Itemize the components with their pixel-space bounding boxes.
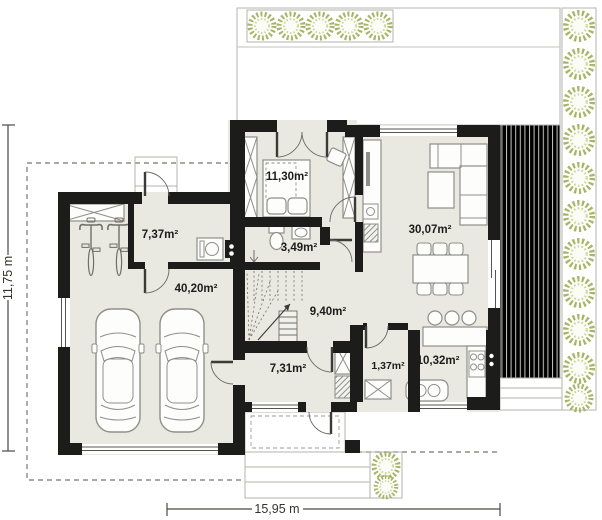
window-kitchen bbox=[420, 402, 467, 412]
shrub-icon bbox=[279, 14, 303, 38]
closet-icon bbox=[365, 380, 391, 399]
sliding-door-living bbox=[488, 240, 500, 308]
room-label-pantry: 1,37m² bbox=[371, 360, 405, 372]
kitchen-counter-icon bbox=[467, 346, 486, 398]
dimension-width-label: 15,95 m bbox=[254, 502, 299, 516]
shrub-icon bbox=[366, 14, 390, 38]
shrub-icon bbox=[566, 51, 592, 77]
door-main-entrance bbox=[309, 412, 331, 434]
shrub-icon bbox=[337, 14, 361, 38]
entrance-porch bbox=[245, 412, 370, 498]
coffee-table-icon bbox=[428, 172, 454, 208]
shrub-icon bbox=[566, 317, 592, 343]
room-label-entrance: 7,31m² bbox=[270, 363, 307, 375]
bar-counter-icon bbox=[423, 327, 487, 346]
room-label-hall: 9,40m² bbox=[310, 306, 347, 318]
room-label-bedroom: 11,30m² bbox=[266, 171, 308, 183]
dining-table-icon bbox=[413, 255, 468, 283]
wardrobe-icon bbox=[343, 137, 355, 218]
shrub-icon bbox=[566, 165, 592, 191]
bar-stool-icon bbox=[462, 311, 476, 325]
car-icon bbox=[156, 309, 208, 432]
dimension-left: 11,75 m bbox=[1, 125, 15, 451]
shrub-icon bbox=[376, 477, 396, 497]
radiator-icon bbox=[364, 224, 378, 242]
floor-plan-page: 7,37m² 11,30m² 3,49m² 30,07m² 40,20m² 9,… bbox=[0, 0, 602, 520]
utility-furniture bbox=[197, 238, 223, 260]
window-living-top bbox=[380, 126, 457, 136]
shrub-icon bbox=[566, 241, 592, 267]
room-label-utility: 7,37m² bbox=[142, 229, 179, 241]
garage-door bbox=[82, 444, 218, 454]
dimension-height-label: 11,75 m bbox=[1, 256, 15, 300]
dining-set-icon bbox=[413, 243, 468, 295]
shrub-icon bbox=[566, 355, 592, 381]
bed-icon bbox=[263, 160, 310, 217]
tv-unit-icon bbox=[363, 140, 381, 252]
shrub-icon bbox=[374, 454, 398, 478]
dimension-bottom: 15,95 m bbox=[167, 502, 500, 516]
room-label-living: 30,07m² bbox=[409, 224, 452, 236]
window-entrance bbox=[252, 402, 298, 412]
planter-right bbox=[562, 8, 596, 410]
terrace-side-deck bbox=[500, 125, 560, 378]
shrub-icon bbox=[566, 127, 592, 153]
shrub-icon bbox=[566, 279, 592, 305]
wardrobe-icon bbox=[244, 137, 257, 218]
floor-plan: 7,37m² 11,30m² 3,49m² 30,07m² 40,20m² 9,… bbox=[0, 0, 602, 520]
pantry-closet bbox=[365, 380, 391, 399]
shrub-icon bbox=[566, 13, 592, 39]
shrub-icon bbox=[250, 14, 274, 38]
shrub-icon bbox=[566, 203, 592, 229]
shrub-icon bbox=[566, 89, 592, 115]
room-label-kitchen: 10,32m² bbox=[417, 355, 460, 367]
planter-entrance bbox=[370, 452, 402, 498]
shrub-icon bbox=[567, 386, 591, 410]
bar-stool-icon bbox=[428, 311, 442, 325]
room-label-bathroom: 3,49m² bbox=[281, 242, 318, 254]
porch-column bbox=[345, 440, 360, 453]
planter-top bbox=[247, 10, 393, 42]
washing-machine-icon bbox=[197, 238, 223, 260]
bar-stool-icon bbox=[445, 311, 459, 325]
terrace-steps bbox=[500, 378, 562, 410]
window-garage-left bbox=[58, 298, 70, 347]
car-icon bbox=[92, 309, 144, 432]
room-label-garage: 40,20m² bbox=[175, 283, 218, 295]
sink-icon bbox=[292, 226, 310, 239]
shrub-icon bbox=[308, 14, 332, 38]
